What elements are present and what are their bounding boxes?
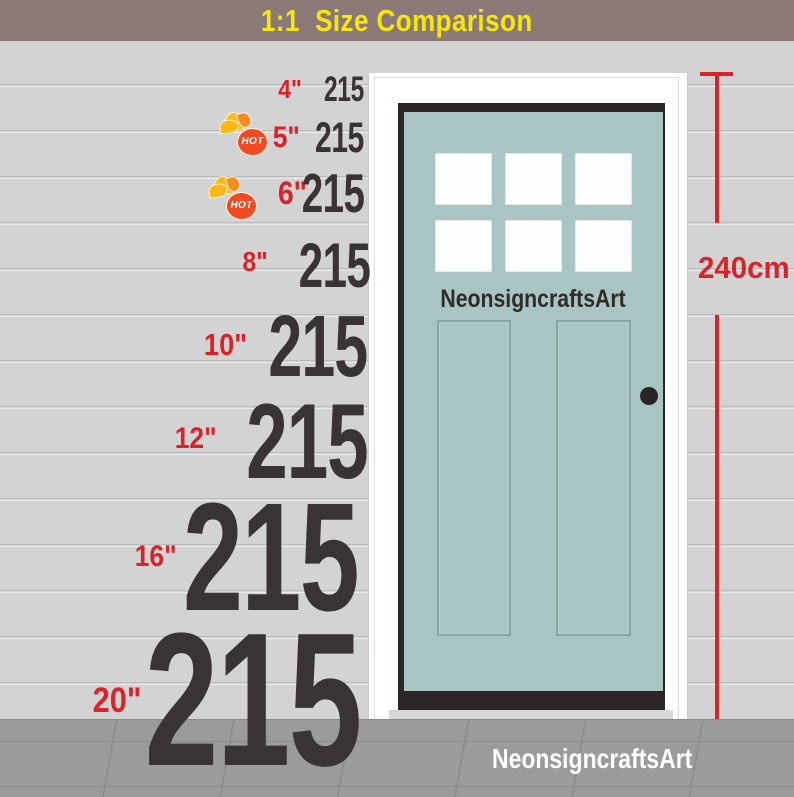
dimension-line-lower [715,315,719,719]
size-label-16in: 16" [135,546,177,569]
number-sample-4in: 215 [324,77,364,103]
size-label-4in: 4" [278,80,302,100]
door-window-pane [505,220,562,272]
number-sample-12in: 215 [246,402,368,480]
door-surface: NeonsigncraftsArt [404,112,663,691]
door-threshold [389,710,673,719]
door-frame: NeonsigncraftsArt [368,73,688,719]
door-watermark: NeonsigncraftsArt [404,287,663,312]
number-sample-6in: 215 [301,173,364,213]
door-window-pane [505,153,562,205]
number-sample-5in: 215 [315,123,364,154]
size-label-5in: 5" [273,127,300,150]
size-label-10in: 10" [204,333,247,356]
hot-badge-label: HOT [230,201,252,211]
door-window-pane [575,153,632,205]
hot-flame-badge-6in: HOT [210,174,258,222]
title-banner: 1:1 Size Comparison [0,0,794,41]
door-height-label: 240cm [698,256,790,279]
number-sample-10in: 215 [268,315,367,379]
door-window-grid [435,153,632,272]
floor-watermark: NeonsigncraftsArt [492,745,692,773]
flame-icon [208,183,228,199]
door-window-pane [435,153,492,205]
number-sample-8in: 215 [298,243,370,289]
door-slab: NeonsigncraftsArt [398,103,665,710]
number-sample-20in: 215 [144,631,360,770]
size-comparison-infographic: 1:1 Size Comparison NeonsigncraftsArt 4"… [0,0,794,797]
door-panel-left [437,320,511,636]
hot-badge-label: HOT [241,137,263,147]
hot-flame-badge-5in: HOT [221,110,269,158]
flame-icon [219,119,239,135]
door-window-pane [435,220,492,272]
size-label-20in: 20" [93,688,142,714]
door-window-pane [575,220,632,272]
hot-badge-circle: HOT [226,192,257,220]
page-title: 1:1 Size Comparison [261,5,533,36]
door-knob [640,387,658,405]
size-label-8in: 8" [243,251,268,272]
door-panel-right [556,320,631,636]
hot-badge-circle: HOT [237,128,268,156]
size-label-12in: 12" [175,428,217,451]
dimension-line-upper [715,76,719,223]
